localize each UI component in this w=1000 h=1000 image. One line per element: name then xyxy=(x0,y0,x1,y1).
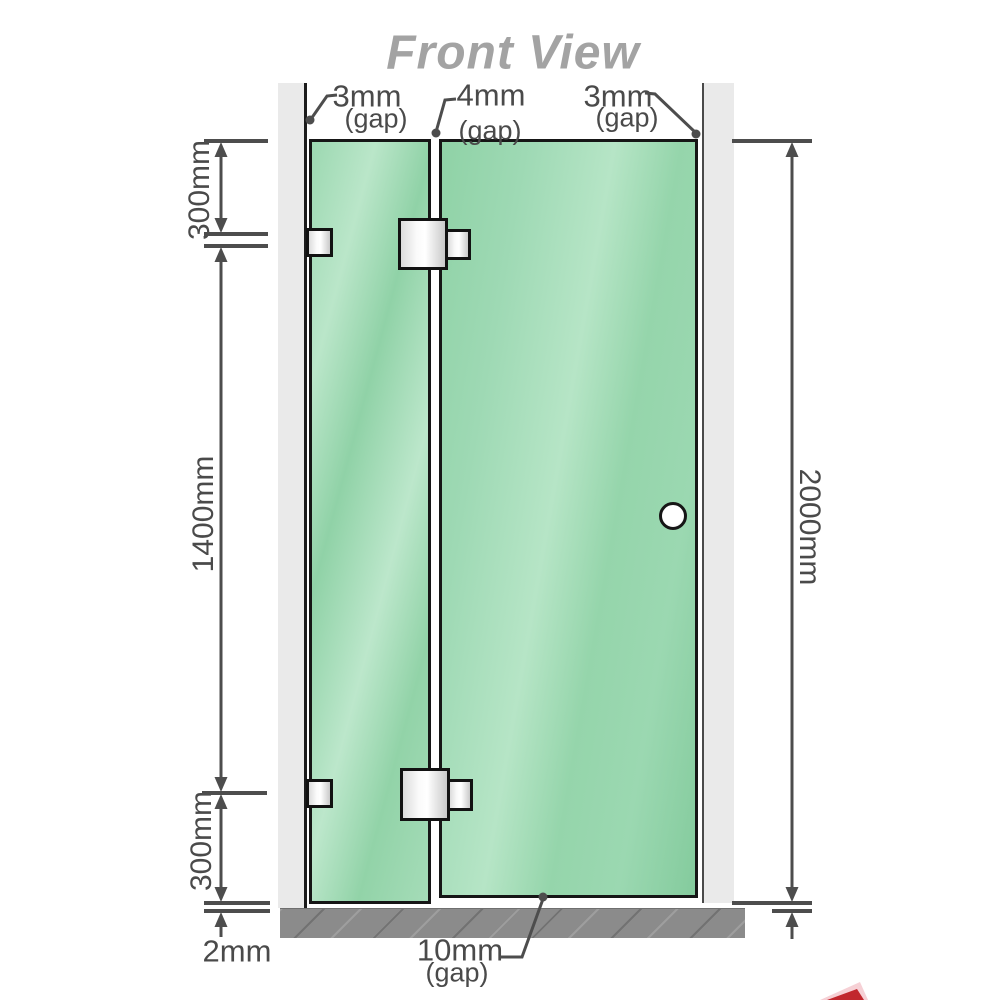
floor-base xyxy=(280,908,745,938)
diagram-title: Front View xyxy=(386,26,640,81)
bottom-hinge xyxy=(400,768,450,821)
left-wall-channel xyxy=(278,83,307,908)
middle-section-height: 1400mm xyxy=(189,456,219,573)
middle-gap-value: 4mm xyxy=(457,80,526,111)
overall-height: 2000mm xyxy=(794,469,824,586)
door-knob-icon xyxy=(659,502,687,530)
right-wall-channel xyxy=(702,83,734,903)
front-view-diagram: Front View xyxy=(0,0,1000,1000)
top-left-gap-unit: (gap) xyxy=(344,106,407,133)
top-hinge-clamp xyxy=(445,229,471,260)
upper-section-height: 300mm xyxy=(185,140,215,240)
top-right-gap-unit: (gap) xyxy=(595,105,658,132)
door-floor-gap-unit: (gap) xyxy=(425,960,488,987)
bottom-hinge-clamp xyxy=(447,779,473,811)
lower-section-height: 300mm xyxy=(187,791,217,891)
red-corner-mark xyxy=(820,982,868,1000)
top-wall-bracket xyxy=(306,228,333,257)
top-hinge xyxy=(398,218,448,270)
middle-gap-unit: (gap) xyxy=(458,118,521,145)
floor-clearance-label: 2mm xyxy=(203,936,272,967)
bottom-wall-bracket xyxy=(306,779,333,808)
